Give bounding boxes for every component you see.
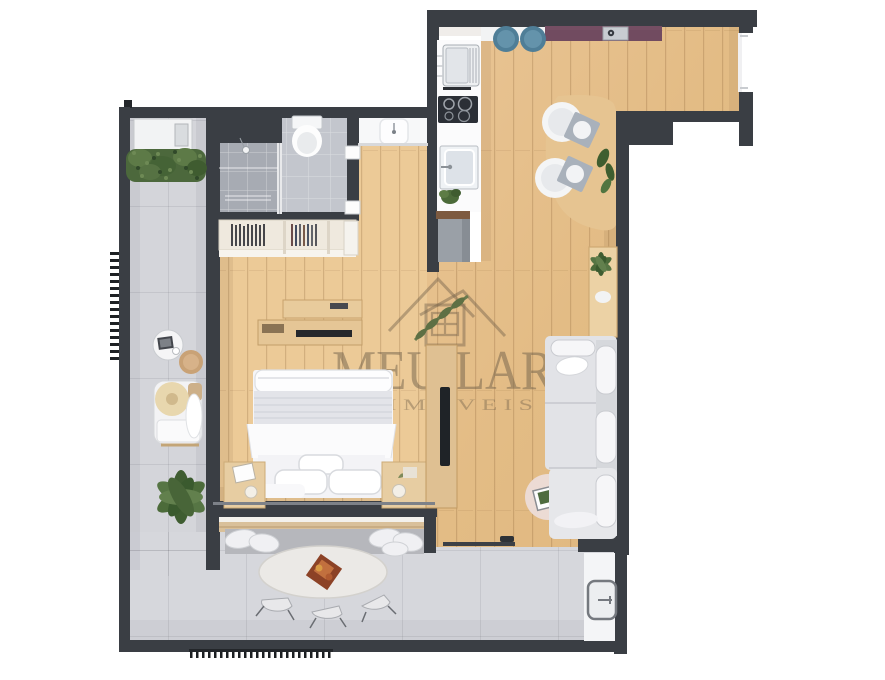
svg-text:I M Ó V E I S: I M Ó V E I S (388, 395, 533, 414)
